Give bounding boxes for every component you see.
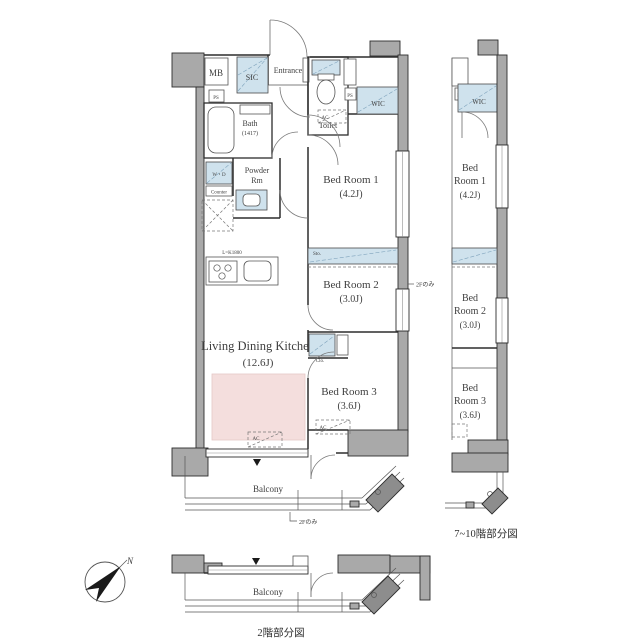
sub-plan-lower: Balcony 2階部分図: [172, 555, 430, 639]
bedroom3-size: (3.6J): [337, 401, 360, 412]
sub-balcony-corner-wall: [482, 488, 508, 514]
sub-bed1-l1: Bed: [462, 163, 478, 174]
rug-area: [212, 374, 305, 440]
toilet-tank: [318, 74, 334, 80]
sub-bed2-l3: (3.0J): [460, 320, 481, 330]
bath-counter: [240, 105, 270, 114]
sub-plan-upper: PS WIC Bed Room 1 (4.2J) Bed Room 2 (3.0…: [445, 40, 518, 540]
sub-counter-box: [452, 58, 468, 86]
balcony-window: [206, 449, 308, 466]
floor-plan-page: MB PS SIC Entrance Toilet PS WIC: [0, 0, 640, 640]
closet: Clo.: [309, 334, 348, 364]
wd-label: W・D: [212, 173, 226, 178]
compass: N: [85, 556, 134, 602]
door-frame-2f: [293, 556, 308, 566]
sub-bed2-l1: Bed: [462, 293, 478, 304]
main-balcony: Balcony 2Fのみ: [185, 456, 404, 526]
sub-bed3-l2: Room 3: [454, 396, 486, 407]
clo-label: Clo.: [316, 359, 324, 364]
ps-label: PS: [213, 96, 219, 101]
sto-label: Sto.: [313, 252, 321, 257]
bedroom1-label: Bed Room 1: [323, 174, 379, 186]
bath-label: Bath: [242, 119, 257, 128]
ldk-size-label: (12.6J): [243, 357, 274, 369]
floor-plan-drawing: MB PS SIC Entrance Toilet PS WIC: [0, 0, 640, 640]
kitchen-length-label: L=K1800: [222, 251, 242, 256]
balcony-label: Balcony: [253, 484, 283, 494]
entry-direction-marker: [253, 459, 261, 466]
sub-wic: WIC: [458, 84, 497, 112]
sub-lower-caption: 2階部分図: [257, 626, 304, 639]
ldk-label: Living Dining Kitchen: [201, 339, 316, 353]
sub-ac-space: [452, 424, 467, 437]
kitchen-counter: L=K1800: [206, 251, 278, 285]
balcony-vent: [350, 501, 359, 507]
bedroom1-size: (4.2J): [339, 189, 362, 200]
note-2f-only-side: 2Fのみ: [408, 282, 434, 289]
vanity-sink: [243, 194, 260, 206]
ac-space-bedroom3: AC: [316, 420, 350, 434]
sub-storage-strip: [452, 248, 497, 267]
sub-bed1-l3: (4.2J): [460, 190, 481, 200]
sic-label: SIC: [246, 73, 258, 82]
bedroom3-label: Bed Room 3: [321, 386, 377, 398]
sub-balcony-vent: [466, 502, 474, 508]
powder-label-1: Powder: [245, 166, 270, 175]
compass-needle: [85, 566, 121, 602]
only2f-label-side: 2Fのみ: [416, 282, 434, 289]
sub-bed3-l1: Bed: [462, 383, 478, 394]
only2f-label-bottom: 2Fのみ: [299, 519, 317, 526]
refrigerator-space: [202, 200, 233, 231]
balcony-label-2f: Balcony: [253, 587, 283, 597]
sub-bed3-l3: (3.6J): [460, 410, 481, 420]
mb-label: MB: [209, 68, 223, 78]
entrance-label: Entrance: [274, 66, 303, 75]
counter-label: Counter: [211, 191, 227, 196]
storage-strip: Sto.: [308, 248, 398, 267]
sub-bed1-l2: Room 1: [454, 176, 486, 187]
shoes-in-closet: SIC: [237, 57, 268, 93]
sub-wic-label: WIC: [472, 98, 486, 106]
bathtub: [208, 107, 234, 153]
powder-label-2: Rm: [251, 176, 263, 185]
balcony-vent-2f: [350, 603, 359, 609]
kitchen-sink: [244, 261, 271, 281]
ac-label-3: AC: [253, 437, 261, 442]
main-floor-plan: MB PS SIC Entrance Toilet PS WIC: [172, 20, 434, 526]
toilet-counter-box: [344, 59, 356, 85]
bathroom: Bath (1417): [204, 103, 272, 158]
entry-direction-marker-2f: [252, 558, 260, 565]
powder-room: W・D Counter Powder Rm: [206, 162, 270, 210]
sub-upper-caption: 7~10階部分図: [454, 527, 517, 540]
ac-label-2: AC: [320, 426, 328, 431]
ps-label-2: PS: [347, 94, 353, 99]
sub-bed2-l2: Room 2: [454, 306, 486, 317]
bedroom2-label: Bed Room 2: [323, 279, 379, 291]
bedroom2-size: (3.0J): [339, 294, 362, 305]
bath-size-label: (1417): [242, 130, 258, 137]
compass-north-label: N: [126, 556, 134, 566]
toilet-bowl: [317, 80, 335, 104]
balcony-corner-wall: [366, 474, 404, 512]
walk-in-closet: WIC: [357, 87, 398, 114]
wic-label: WIC: [371, 100, 385, 108]
